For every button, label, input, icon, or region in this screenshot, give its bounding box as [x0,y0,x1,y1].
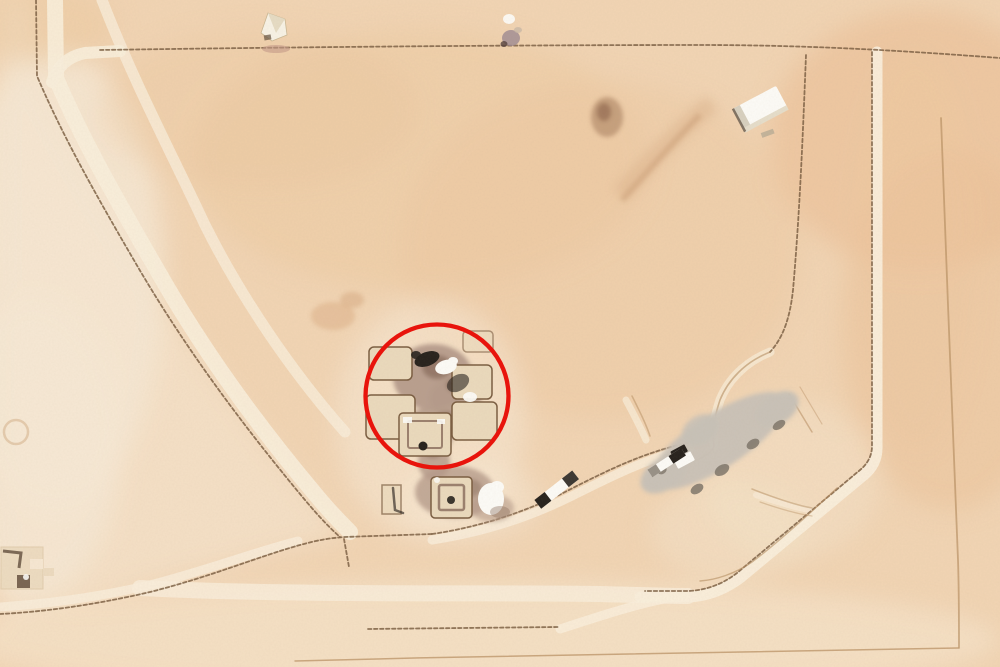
satellite-image [0,0,1000,667]
film-grain-overlay [0,0,1000,667]
satellite-image-canvas [0,0,1000,667]
